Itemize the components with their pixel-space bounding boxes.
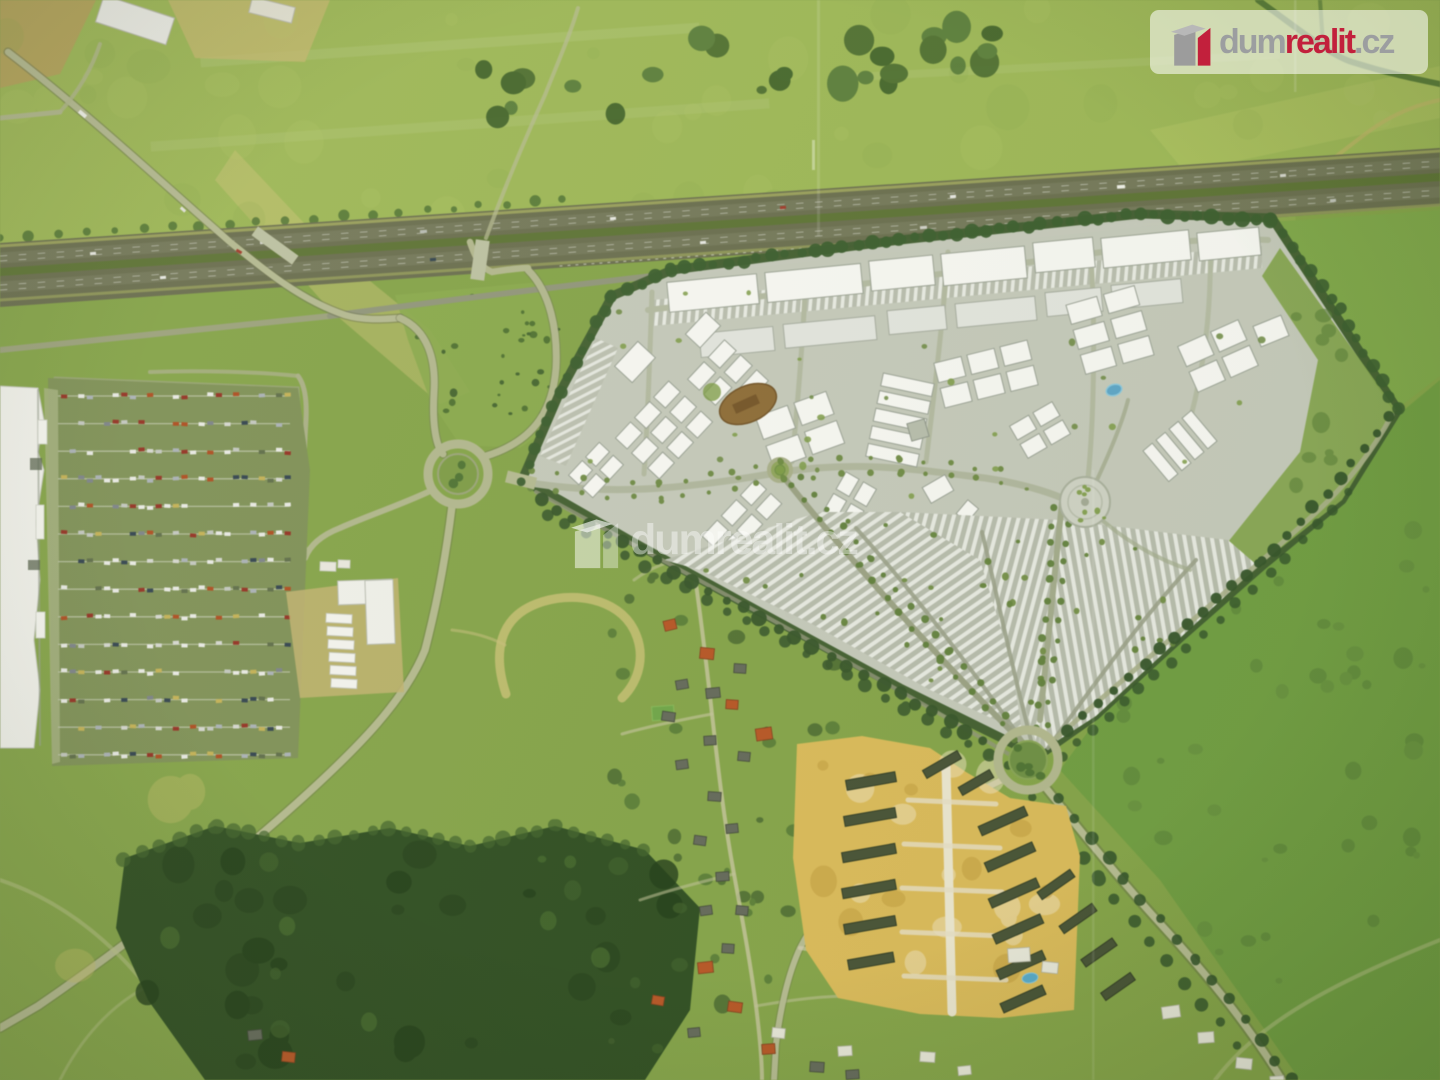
logo-text: dumrealit.cz [1219, 25, 1393, 59]
plaza-circle-core [1081, 498, 1089, 506]
aerial-photo-wrap [0, 0, 1440, 1080]
crease-bottom [1092, 470, 1095, 1080]
green-plot [703, 383, 721, 401]
parking-lot [48, 378, 310, 766]
logo-building-icon [1160, 14, 1212, 70]
crease-top [817, 0, 820, 236]
aerial-site-plan [0, 0, 1440, 1080]
logo-realit: realit [1285, 23, 1354, 61]
warehouse-wing [365, 580, 395, 645]
dumrealit-logo[interactable]: dumrealit.cz [1150, 10, 1428, 74]
logo-icon-side [1198, 28, 1211, 66]
logo-dum: dum [1219, 23, 1285, 61]
listing-photo: dumrealit.cz dumrealit.cz [0, 0, 1440, 1080]
logo-icon-roof [1171, 25, 1206, 36]
logo-cz: .cz [1354, 23, 1393, 61]
mini-roundabout-island [775, 465, 785, 475]
crease-top-bright [812, 140, 815, 170]
